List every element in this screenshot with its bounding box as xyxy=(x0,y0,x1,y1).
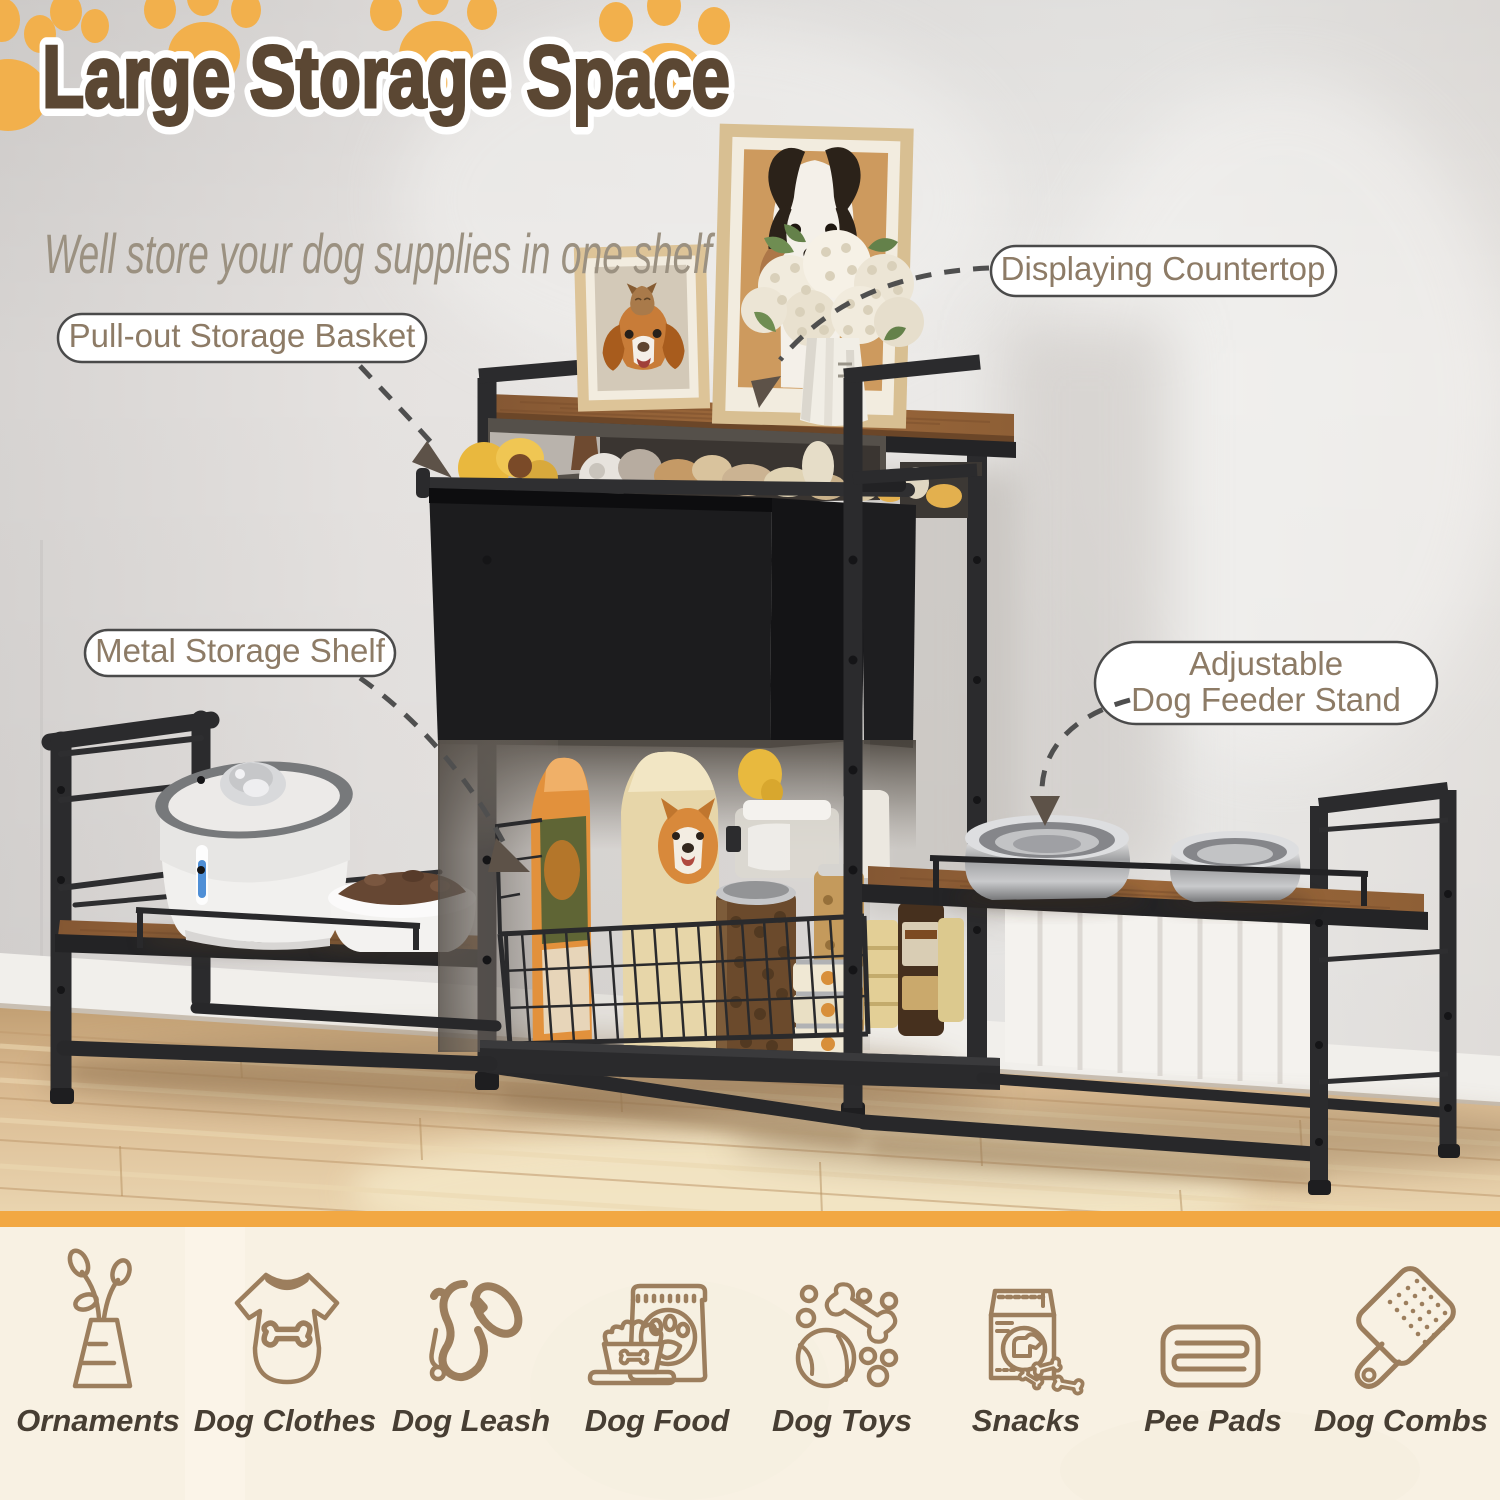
svg-text:Snacks: Snacks xyxy=(972,1403,1081,1438)
svg-text:Well store your dog supplies i: Well store your dog supplies in one shel… xyxy=(44,222,716,285)
svg-text:Dog Food: Dog Food xyxy=(585,1403,731,1438)
svg-text:Dog Toys: Dog Toys xyxy=(772,1403,912,1438)
svg-text:Large Storage Space: Large Storage Space xyxy=(42,27,730,126)
svg-text:Adjustable: Adjustable xyxy=(1189,645,1343,682)
svg-text:Ornaments: Ornaments xyxy=(16,1403,180,1438)
svg-text:Dog Clothes: Dog Clothes xyxy=(194,1403,377,1438)
svg-text:Pull-out Storage Basket: Pull-out Storage Basket xyxy=(69,317,416,354)
svg-text:Pee Pads: Pee Pads xyxy=(1144,1403,1282,1438)
svg-text:Dog Combs: Dog Combs xyxy=(1314,1403,1488,1438)
svg-text:Displaying Countertop: Displaying Countertop xyxy=(1001,250,1326,287)
svg-text:Metal Storage Shelf: Metal Storage Shelf xyxy=(95,632,386,669)
svg-text:Dog Leash: Dog Leash xyxy=(392,1403,550,1438)
svg-text:Dog Feeder Stand: Dog Feeder Stand xyxy=(1131,681,1401,718)
